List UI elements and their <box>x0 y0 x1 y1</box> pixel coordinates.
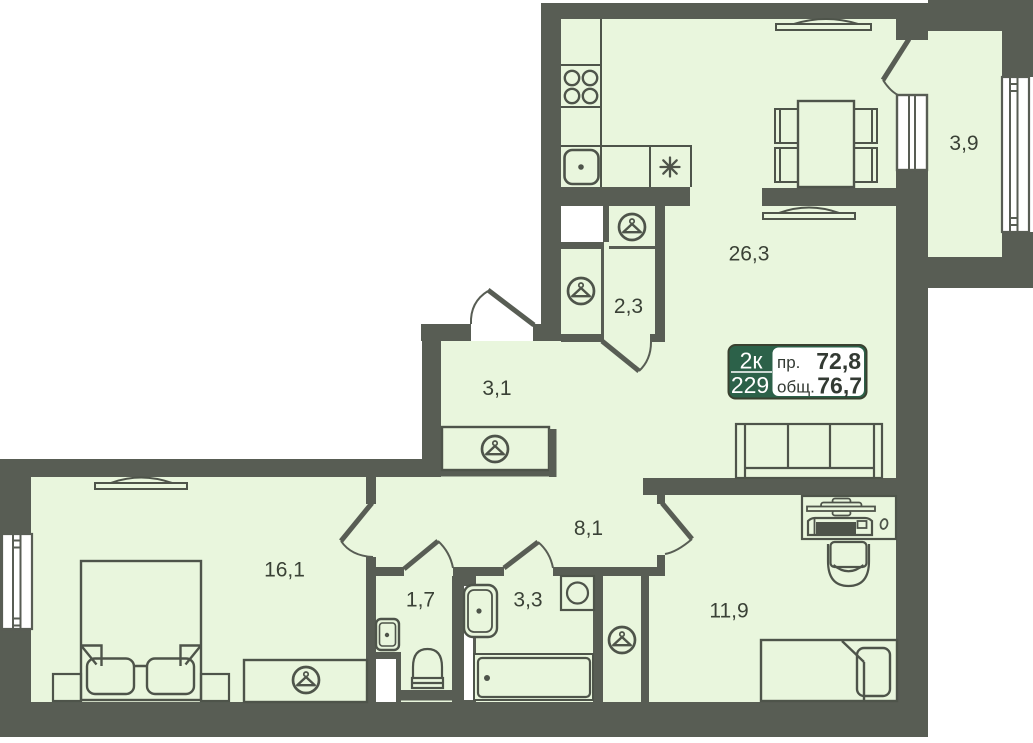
svg-text:16,1: 16,1 <box>264 559 305 582</box>
svg-text:2,3: 2,3 <box>614 295 643 318</box>
svg-text:11,9: 11,9 <box>709 600 748 623</box>
svg-text:3,9: 3,9 <box>949 132 978 155</box>
svg-text:26,3: 26,3 <box>729 243 770 266</box>
svg-text:1,7: 1,7 <box>406 589 435 612</box>
svg-text:пр.: пр. <box>777 353 800 372</box>
svg-text:8,1: 8,1 <box>574 517 603 540</box>
svg-text:76,7: 76,7 <box>817 373 862 399</box>
svg-text:3,1: 3,1 <box>482 377 511 400</box>
svg-text:229: 229 <box>731 372 769 398</box>
svg-text:3,3: 3,3 <box>513 589 542 612</box>
svg-text:72,8: 72,8 <box>816 348 861 374</box>
svg-text:общ.: общ. <box>777 378 815 397</box>
svg-text:2к: 2к <box>740 348 764 374</box>
